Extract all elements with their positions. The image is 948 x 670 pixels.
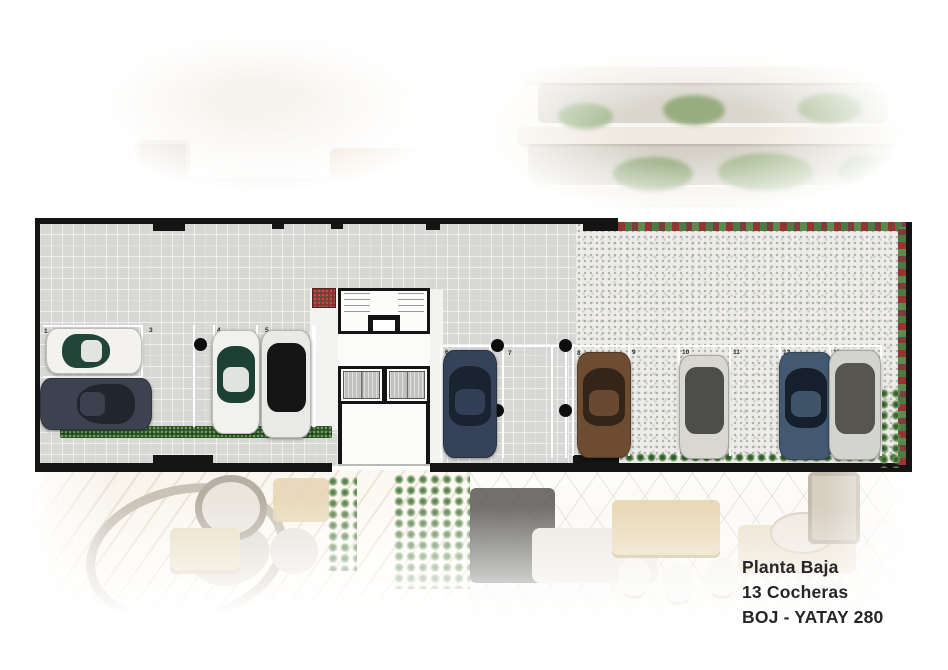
round-table	[770, 512, 836, 554]
deck-floor	[30, 470, 470, 655]
parking-space-number: 7	[508, 351, 512, 358]
parking-line	[502, 346, 504, 458]
balcony-slab-3	[513, 187, 908, 205]
parking-line	[572, 345, 574, 456]
car-top-view-space-12	[779, 352, 833, 460]
parking-line	[729, 345, 731, 456]
chair-cushion-1	[184, 516, 277, 595]
balcony-plant-6	[838, 155, 898, 189]
hall-wall-left	[338, 404, 342, 464]
car-roof	[589, 390, 618, 415]
balcony-plant-3	[798, 93, 862, 123]
elevator-cabin-1	[343, 371, 380, 399]
balcony-plant-4	[613, 157, 693, 191]
parking-line	[43, 325, 143, 327]
balcony-slab-1	[523, 67, 893, 83]
wall-frame	[808, 472, 860, 544]
entrance-hall	[338, 404, 430, 464]
dark-cabinet	[470, 488, 555, 583]
wall-pier	[153, 455, 213, 464]
parking-line	[565, 346, 567, 458]
car-top-view-space-10	[679, 355, 729, 459]
console-table	[273, 478, 329, 522]
car-top-view-space-8	[577, 352, 631, 458]
car-top-view-space-13	[829, 350, 881, 460]
car-glass	[835, 363, 876, 433]
caption-space-count: 13 Cocheras	[742, 580, 883, 605]
facade-base	[468, 15, 913, 218]
stair-flight-left	[344, 293, 370, 317]
column-dot	[559, 339, 572, 352]
car-roof	[223, 367, 249, 392]
balcony-plant-2	[663, 95, 725, 125]
round-rattan-chair-2	[195, 475, 267, 541]
chair-1	[618, 558, 650, 596]
elevator-block	[338, 366, 430, 404]
car-top-view-space-1	[46, 328, 142, 374]
flower-planter	[312, 288, 336, 308]
parking-line	[312, 325, 316, 427]
wall-bottom-left	[35, 463, 332, 472]
dining-table	[612, 500, 720, 558]
caption-block: Planta Baja 13 Cocheras BOJ - YATAY 280	[742, 555, 883, 630]
balcony-plant-5	[718, 153, 813, 191]
wall-right	[906, 222, 912, 472]
column-dot	[194, 338, 207, 351]
caption-floor-name: Planta Baja	[742, 555, 883, 580]
hall-wall-right	[426, 404, 430, 464]
window-band-2	[528, 143, 898, 185]
white-fade-overlay	[468, 15, 913, 218]
wall-bottom-right	[430, 463, 912, 472]
wood-side-table	[170, 528, 240, 574]
floor-plan: 1 2 3 4 5 6 7 8 9 10 11 12 13	[35, 218, 912, 472]
parking-line	[440, 346, 442, 458]
parking-line	[551, 346, 553, 458]
wall-pier	[426, 224, 440, 230]
balcony-slab-2	[518, 127, 903, 144]
car-top-view-space-6	[443, 350, 497, 458]
wall-left	[35, 218, 40, 472]
car-glass	[685, 367, 724, 434]
car-roof	[791, 391, 820, 417]
background-render-patio-lounge	[30, 470, 470, 655]
stair-flight-right	[398, 293, 424, 317]
parking-space-number: 3	[149, 328, 153, 335]
wall-art	[135, 140, 190, 188]
ceiling-tint	[30, 12, 460, 218]
white-fade-overlay	[30, 470, 470, 655]
chair-3	[706, 558, 738, 596]
column-dot	[491, 339, 504, 352]
pouf	[270, 528, 318, 574]
parking-space-number: 9	[632, 350, 636, 357]
car-roof	[81, 340, 102, 362]
wall-pier	[272, 224, 284, 229]
car-glass	[267, 343, 306, 412]
elevator-cabin-2	[389, 371, 426, 399]
background-render-facade	[468, 15, 913, 218]
window-band-1	[538, 83, 888, 123]
car-top-view-space-2	[40, 378, 152, 430]
car-top-view-space-4	[212, 330, 260, 434]
car-roof	[80, 392, 105, 417]
brochure-page: 1 2 3 4 5 6 7 8 9 10 11 12 13 Planta Baj…	[0, 0, 948, 670]
white-fade-overlay	[30, 12, 460, 218]
kitchen-cabinets	[330, 148, 460, 192]
wall-pier	[331, 224, 343, 229]
car-top-view-space-5	[261, 330, 311, 438]
entrance-threshold	[338, 464, 430, 466]
flower-border-top	[618, 222, 906, 231]
parking-line	[440, 345, 880, 347]
bench	[532, 528, 657, 583]
hedge-wall-1	[327, 476, 357, 571]
column-dot	[559, 404, 572, 417]
elevator-divider-wall	[382, 369, 387, 401]
parking-space-number: 11	[733, 350, 740, 357]
round-rattan-chair-1	[73, 465, 300, 642]
elevator-lobby	[338, 334, 430, 366]
chair-2	[662, 564, 694, 602]
wall-pier	[583, 218, 618, 231]
staircase	[338, 288, 430, 334]
stair-well-wall	[368, 315, 400, 331]
caption-project-name: BOJ - YATAY 280	[742, 605, 883, 630]
wall-top	[35, 218, 618, 224]
balcony-plant-1	[558, 103, 613, 129]
hedge-wall-2	[393, 474, 470, 589]
car-roof	[455, 389, 484, 415]
background-render-living-room	[30, 12, 460, 218]
wall-pier	[153, 224, 185, 231]
